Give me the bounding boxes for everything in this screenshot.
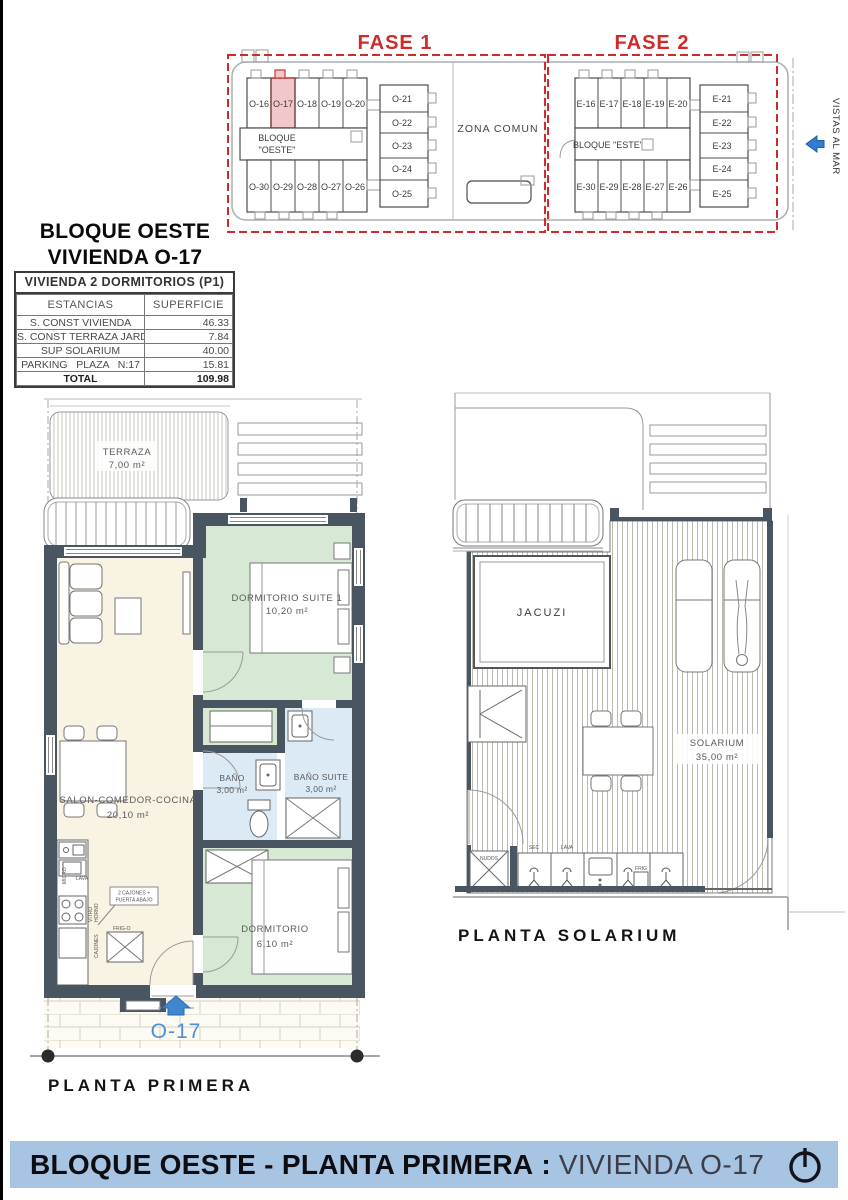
unit-label: E-22 — [712, 118, 731, 128]
fase1-label: FASE 1 — [358, 32, 433, 54]
surface-table-title: VIVIENDA 2 DORMITORIOS (P1) — [16, 273, 233, 294]
unit-label: E-25 — [712, 189, 731, 199]
dorm-label: DORMITORIO — [241, 924, 309, 935]
planta-solarium-plan: JACUZI SOLARIUM 3 — [450, 385, 848, 960]
bano-label: BAÑO — [219, 773, 244, 783]
row-value: 46.33 — [145, 316, 233, 330]
table-row: PARKING PLAZA N:17 15.81 — [17, 358, 233, 372]
north-compass-icon — [786, 1146, 824, 1184]
table-row: S. CONST VIVIENDA 46.33 — [17, 316, 233, 330]
sec-label: SEC — [529, 845, 540, 851]
footer-separator: : — [541, 1149, 550, 1181]
fridge — [107, 932, 143, 962]
footer-title-light: VIVIENDA O-17 — [559, 1149, 765, 1181]
sun-lounger-person — [724, 560, 760, 672]
row-label: S. CONST TERRAZA JARDÍN — [17, 330, 145, 344]
horno-label: HORNO — [94, 903, 100, 922]
frigo-label: FRIG-O — [113, 926, 131, 932]
row-label: S. CONST VIVIENDA — [17, 316, 145, 330]
unit-label: E-18 — [622, 99, 641, 109]
unit-label: O-19 — [321, 99, 341, 109]
bano-suite-area-label: 3,00 m² — [306, 784, 337, 794]
fase2-label: FASE 2 — [615, 32, 690, 54]
terraza-balustrade — [44, 498, 190, 550]
walkway — [44, 998, 360, 1048]
bloque-oeste-label: BLOQUE — [258, 133, 296, 143]
table-row-total: TOTAL 109.98 — [17, 372, 233, 386]
unit-label: O-26 — [345, 182, 365, 192]
nudos-label: NUDOS — [480, 856, 499, 862]
salon-label: SALON-COMEDOR-COCINA — [59, 795, 196, 806]
row-value: 7.84 — [145, 330, 233, 344]
unit-label: E-17 — [599, 99, 618, 109]
unit-label: E-23 — [712, 141, 731, 151]
salon-area-label: 20,10 m² — [107, 810, 149, 821]
unit-label: E-27 — [645, 182, 664, 192]
unit-label: O-17 — [273, 99, 293, 109]
unit-label: E-26 — [668, 182, 687, 192]
lava-label: LAVA — [76, 876, 89, 882]
unit-label: E-21 — [712, 94, 731, 104]
row-value: 40.00 — [145, 344, 233, 358]
scan-edge — [0, 0, 3, 1200]
unit-title: BLOQUE OESTE VIVIENDA O-17 — [14, 219, 236, 271]
solarium-label: SOLARIUM — [690, 738, 744, 749]
nudos-box: NUDOS — [470, 851, 508, 889]
row-label: PARKING PLAZA N:17 — [17, 358, 145, 372]
bano-suite-label: BAÑO SUITE — [294, 772, 349, 782]
suite-area-label: 10,20 m² — [266, 606, 308, 617]
svg-text:2 CAJONES +: 2 CAJONES + — [118, 891, 150, 897]
solarium-railing — [453, 500, 603, 551]
cajones-label: CAJONES — [94, 934, 100, 958]
micro-label: MICRO — [62, 867, 68, 884]
unit-label: O-25 — [392, 189, 412, 199]
unit-label: O-18 — [297, 99, 317, 109]
unit-label: E-20 — [668, 99, 687, 109]
solarium-area-label: 35,00 m² — [696, 752, 738, 763]
row-value: 109.98 — [145, 372, 233, 386]
table-row: SUP SOLARIUM 40.00 — [17, 344, 233, 358]
col-header-superficie: SUPERFICIE — [145, 295, 233, 316]
column-marker — [42, 1050, 55, 1063]
unit-label: O-24 — [392, 164, 412, 174]
terraza-area-label: 7,00 m² — [109, 460, 145, 471]
site-plan: FASE 1 FASE 2 O-16 O-17 O-18 O-19 O-20 B… — [215, 30, 848, 245]
entrance-unit-label: O-17 — [151, 1020, 202, 1043]
unit-label: E-16 — [576, 99, 595, 109]
plan-sheet: FASE 1 FASE 2 O-16 O-17 O-18 O-19 O-20 B… — [0, 0, 848, 1200]
surface-table: VIVIENDA 2 DORMITORIOS (P1) ESTANCIAS SU… — [14, 271, 235, 388]
sofa — [59, 562, 102, 644]
unit-title-line1: BLOQUE OESTE — [14, 219, 236, 245]
bloque-este-label: BLOQUE "ESTE" — [573, 140, 643, 150]
jacuzi-label: JACUZI — [517, 607, 568, 619]
unit-title-line2: VIVIENDA O-17 — [14, 245, 236, 271]
zona-comun-label: ZONA COMUN — [457, 123, 538, 135]
bloque-oeste-label2: "OESTE" — [259, 145, 296, 155]
unit-label: E-24 — [712, 164, 731, 174]
unit-label: E-30 — [576, 182, 595, 192]
planta-solarium-title: PLANTA SOLARIUM — [458, 926, 680, 945]
footer-banner: BLOQUE OESTE - PLANTA PRIMERA : VIVIENDA… — [10, 1141, 838, 1188]
unit-label: O-16 — [249, 99, 269, 109]
column-marker — [351, 1050, 364, 1063]
unit-label: O-29 — [273, 182, 293, 192]
wardrobe — [210, 711, 272, 742]
outdoor-shower — [468, 686, 526, 742]
row-label: TOTAL — [17, 372, 145, 386]
footer-title-bold: BLOQUE OESTE - PLANTA PRIMERA — [30, 1149, 533, 1181]
unit-label: O-30 — [249, 182, 269, 192]
jacuzi: JACUZI — [474, 556, 610, 668]
row-label: SUP SOLARIUM — [17, 344, 145, 358]
planta-primera-title: PLANTA PRIMERA — [48, 1076, 254, 1095]
suite-label: DORMITORIO SUITE 1 — [232, 593, 343, 604]
unit-label: O-21 — [392, 94, 412, 104]
planta-primera-plan: TERRAZA 7,00 m² — [28, 392, 388, 1104]
sun-lounger — [676, 560, 712, 672]
tv-unit — [183, 572, 190, 634]
dorm-area-label: 6,10 m² — [257, 939, 293, 950]
unit-label: E-19 — [645, 99, 664, 109]
pergola-slats — [238, 423, 362, 512]
svg-text:PUERTA ABAJO: PUERTA ABAJO — [115, 898, 152, 904]
coffee-table — [115, 598, 141, 634]
unit-label: O-23 — [392, 141, 412, 151]
bano-area-label: 3,00 m² — [217, 785, 248, 795]
unit-label: O-20 — [345, 99, 365, 109]
unit-label: O-22 — [392, 118, 412, 128]
col-header-estancias: ESTANCIAS — [17, 295, 145, 316]
terraza-label: TERRAZA — [103, 447, 152, 458]
unit-label: O-27 — [321, 182, 341, 192]
unit-label: O-28 — [297, 182, 317, 192]
table-row: S. CONST TERRAZA JARDÍN 7.84 — [17, 330, 233, 344]
lava-label: LAVA — [561, 845, 574, 851]
frig-label: FRIG — [635, 866, 647, 872]
dorm-bed — [252, 860, 352, 974]
unit-label: E-28 — [622, 182, 641, 192]
sea-direction-arrow-icon — [806, 136, 824, 152]
kitchen-counter — [57, 840, 88, 985]
row-value: 15.81 — [145, 358, 233, 372]
vistas-al-mar-label: VISTAS AL MAR — [830, 98, 841, 175]
unit-label: E-29 — [599, 182, 618, 192]
